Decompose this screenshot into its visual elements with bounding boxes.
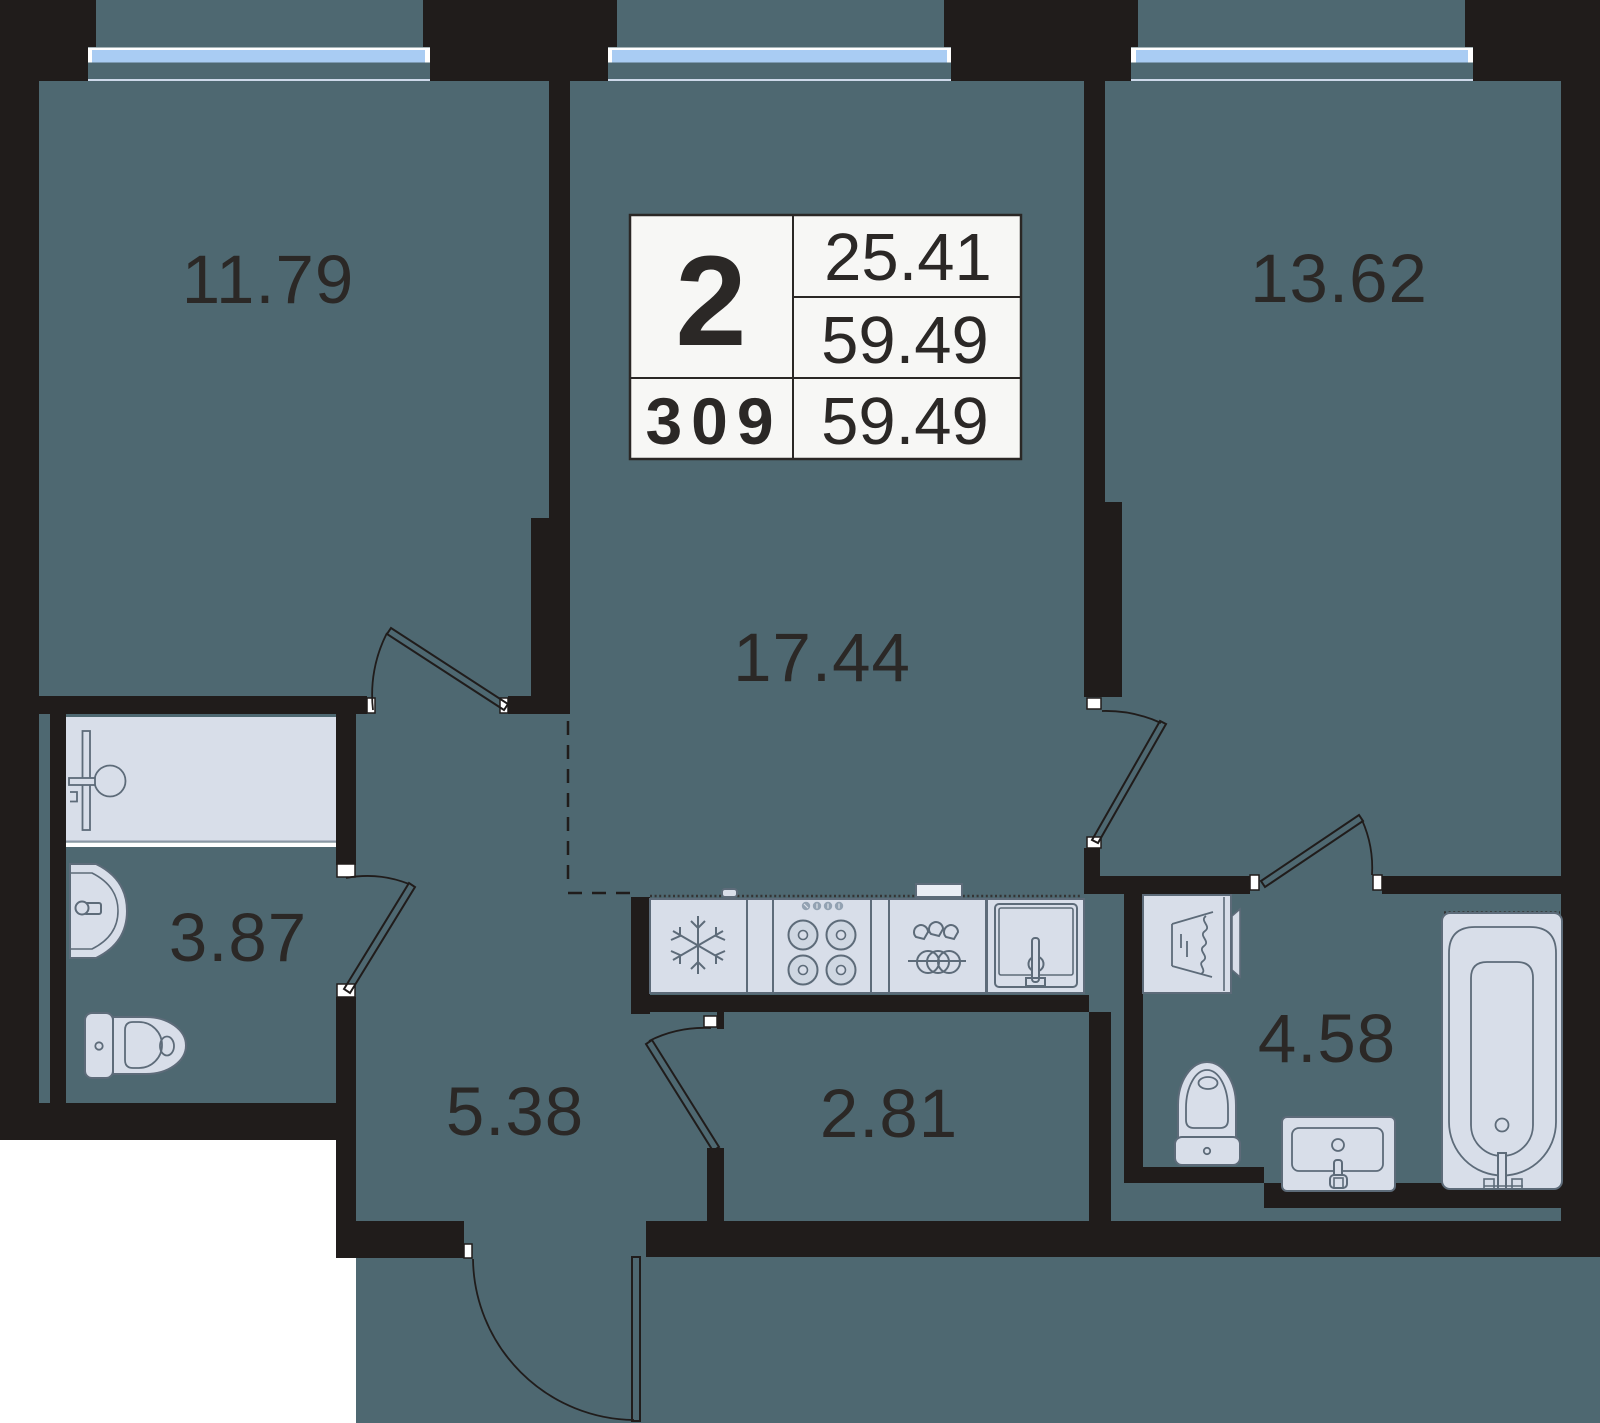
svg-text:25.41: 25.41 [824,220,992,295]
svg-text:17.44: 17.44 [733,619,911,696]
svg-text:309: 309 [645,384,782,458]
svg-text:59.49: 59.49 [821,303,989,378]
svg-text:13.62: 13.62 [1250,240,1428,317]
svg-text:3.87: 3.87 [169,899,307,976]
svg-text:11.79: 11.79 [182,241,355,318]
svg-text:2: 2 [675,230,746,373]
svg-text:4.58: 4.58 [1258,1000,1396,1077]
svg-text:5.38: 5.38 [446,1073,584,1150]
svg-text:59.49: 59.49 [821,384,989,459]
svg-text:2.81: 2.81 [820,1075,958,1152]
